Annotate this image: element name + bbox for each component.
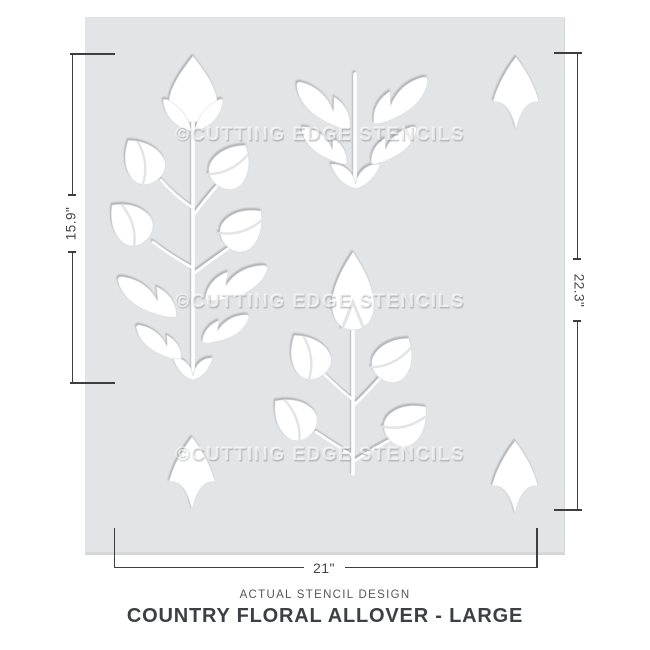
dim-right-tick-bottom (554, 509, 582, 511)
dim-left-line-upper (72, 53, 74, 195)
dim-left-dash-upper (68, 194, 76, 196)
leafy-branch-motif (283, 60, 431, 192)
dim-bottom-tick-right (536, 528, 538, 568)
dim-bottom-line-right (345, 567, 538, 569)
dim-left-tick-bottom (70, 382, 115, 384)
small-flower-motif (268, 250, 438, 478)
corner-petal-top-right (492, 57, 540, 131)
corner-petal-bottom-left (168, 437, 216, 511)
dim-bottom-line-left (114, 567, 304, 569)
dim-bottom-tick-left (114, 528, 116, 568)
dim-label-left: 15.9" (64, 201, 79, 247)
large-flower-motif (103, 56, 273, 386)
corner-petal-bottom-right (491, 441, 539, 515)
caption-subtitle: ACTUAL STENCIL DESIGN (0, 589, 650, 601)
dim-label-right: 22.3" (572, 268, 587, 314)
caption-title: COUNTRY FLORAL ALLOVER - LARGE (0, 605, 650, 628)
dim-left-line-lower (72, 252, 74, 382)
stencil-sheet (85, 17, 565, 555)
dim-right-dash-upper (573, 258, 581, 260)
dim-right-line-lower (577, 321, 579, 509)
dim-left-tick-top (70, 53, 115, 55)
dim-right-line-upper (577, 52, 579, 259)
dim-label-bottom: 21" (303, 560, 345, 576)
